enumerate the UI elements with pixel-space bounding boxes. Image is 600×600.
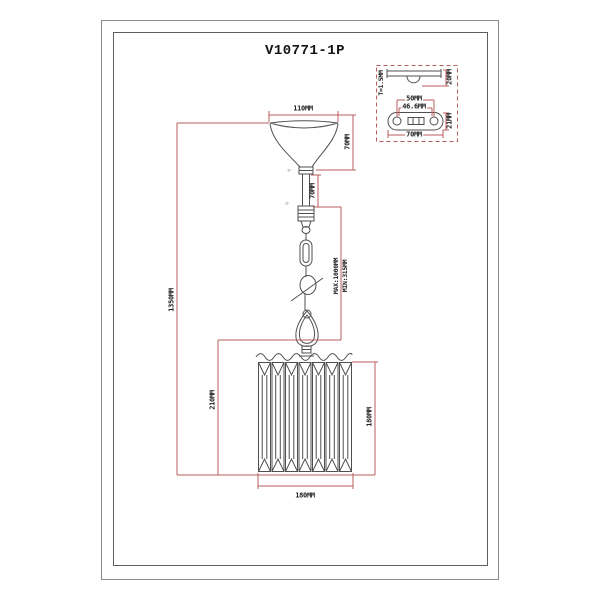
dim-overall-height [177, 123, 269, 475]
drawing-title: V10771-1P [265, 43, 345, 59]
crystal-strips [259, 363, 352, 472]
diameter-mark-upper: ⌀ [287, 169, 290, 174]
technical-drawing-canvas [0, 0, 600, 600]
bracket-height-label: 20MM [447, 69, 454, 85]
chain-link-inner [303, 244, 309, 263]
overall-height-label: 1350MM [169, 288, 176, 312]
chain-wire [305, 234, 306, 311]
teardrop-hook-outer [296, 311, 318, 346]
suspension-min-label: MIN:315MM [342, 260, 349, 293]
plate-thickness-label: T=1.5MM [378, 70, 385, 95]
threaded-connector [298, 206, 314, 227]
shade-rim-wave [256, 353, 352, 360]
hole-spacing-label: 50MM [405, 96, 423, 103]
diameter-mark-lower: ⌀ [285, 202, 288, 207]
plate-center-slot [408, 118, 424, 125]
suspension-max-label: MAX:1000MM [333, 258, 340, 294]
mount-bracket-side-view [387, 69, 441, 83]
plate-hole-left [393, 117, 401, 125]
stem-length-label: 70MM [310, 183, 317, 199]
shade-height-label: 180MM [367, 407, 374, 427]
canopy-width-label: 110MM [293, 106, 313, 113]
canopy-height-label: 70MM [345, 134, 352, 150]
connector-ring [302, 227, 310, 234]
mount-plate-top-view [388, 113, 443, 131]
plate-width-label: 21MM [447, 113, 454, 129]
plate-hole-right [430, 117, 438, 125]
s-hook-gate [291, 278, 323, 301]
plate-length-label: 70MM [405, 132, 423, 139]
canopy-outline [270, 121, 338, 167]
slot-length-label: 46.6MM [401, 104, 427, 111]
lower-section-label: 210MM [210, 390, 217, 410]
teardrop-hook-inner [299, 315, 314, 343]
shade-width-label: 180MM [295, 493, 315, 500]
